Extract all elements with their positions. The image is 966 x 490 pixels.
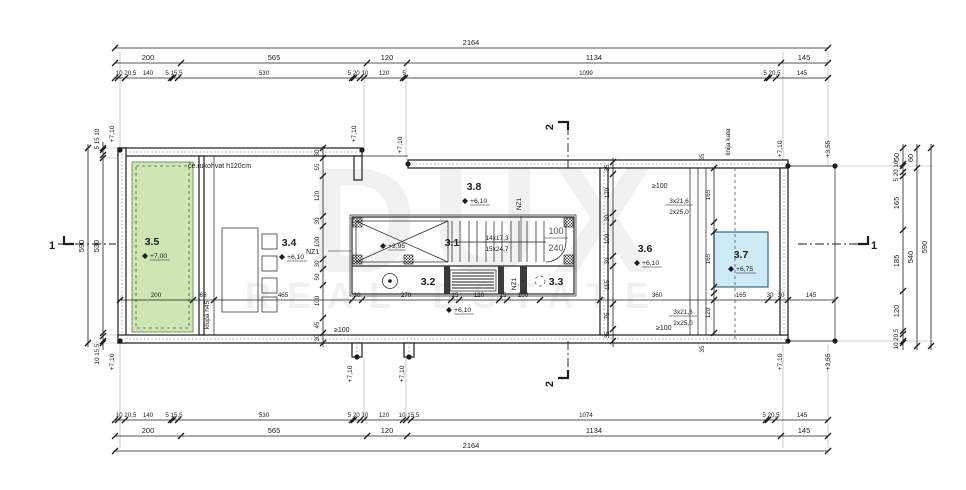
dim-right-c1-5: 10 20,5 <box>893 328 900 349</box>
dim-right-c1-0: 50 <box>892 153 901 161</box>
dimensions-top: 2164 200 565 120 1134 145 10 20,5 140 5 … <box>112 38 831 81</box>
dim-right-c1-3: 185 <box>892 255 901 268</box>
handrail-note: če.rukohvat h120cm <box>188 163 251 170</box>
room-3-5-number: 3.5 <box>145 236 160 248</box>
dim-right-c2-0: 60 <box>906 154 915 162</box>
dim-cc-2: 120 <box>705 307 712 318</box>
dim-left-outer: 590 <box>77 240 86 253</box>
dim-offset-bottom: 35 <box>699 345 706 352</box>
dim-top-r2-2: 120 <box>381 53 394 62</box>
room-3-7-elev: +6,75 <box>736 266 753 273</box>
dim-int-12: 30 <box>778 292 785 299</box>
plan-svg: 2164 200 565 120 1134 145 10 20,5 140 5 … <box>0 0 966 490</box>
dim-bot-r1-0: 10 20,5 <box>116 412 137 419</box>
dim-bot-r1-3: 530 <box>259 412 270 419</box>
dim-bot-r1-1: 140 <box>143 412 154 419</box>
dim-cc-0: 165 <box>705 189 712 200</box>
steps-note-top-1: 3x21,6 <box>669 198 689 205</box>
dim-bot-r1-9: 145 <box>797 412 808 419</box>
bench-note: klupa h45 <box>204 301 211 330</box>
dim-top-r3-4: 5 20 10 <box>348 70 369 77</box>
dim-top-r2-4: 145 <box>798 53 811 62</box>
dim-top-r3-7: 1099 <box>579 70 593 77</box>
section-1-right-label: 1 <box>871 240 877 252</box>
dim-bot-r1-5: 120 <box>379 412 390 419</box>
dim-int-13: 145 <box>806 292 817 299</box>
dim-top-r3-2: 5 15,5 <box>165 70 183 77</box>
room-3-7-number: 3.7 <box>734 249 749 261</box>
floor-plan-drawing: 2164 200 565 120 1134 145 10 20,5 140 5 … <box>0 0 966 490</box>
steps-note-top-2: 2x25,0 <box>669 209 689 216</box>
dim-bot-r2-0: 200 <box>142 426 155 435</box>
floor-line-label: linija kata <box>725 128 732 155</box>
elev-corner: +7,10 <box>399 365 406 382</box>
elev-corner: +3,55 <box>825 353 832 370</box>
dim-int-11: 30 <box>767 292 774 299</box>
dim-top-r3-6: 5 <box>402 70 406 77</box>
dim-top-total: 2164 <box>463 38 480 47</box>
dim-int-1: 65 <box>200 292 207 299</box>
dim-top-r2-1: 565 <box>268 53 281 62</box>
dim-offset-top: 35 <box>699 153 706 160</box>
dim-right-c1-2: 165 <box>892 197 901 210</box>
dim-bot-r1-8: 5 20,5 <box>762 412 780 419</box>
terrace-3-5: 3.5 +7,00 <box>132 162 193 332</box>
dim-cb-7: 35 <box>604 331 611 338</box>
room-3-4-number: 3.4 <box>282 237 297 249</box>
dim-top-r3-3: 530 <box>259 70 270 77</box>
dim-left-inner: 530 <box>92 240 101 253</box>
dim-bot-total: 2164 <box>463 441 480 450</box>
dim-bot-r1-4: 5 20 10 <box>348 412 369 419</box>
section-1-left-label: 1 <box>49 240 55 252</box>
section-2-bottom-label: 2 <box>544 381 556 387</box>
lower-storey-outline <box>788 166 835 341</box>
elev-corner: +3,55 <box>825 140 832 157</box>
dim-ca-9: 30 <box>314 334 321 341</box>
dim-top-r2-0: 200 <box>142 53 155 62</box>
dim-top-r2-3: 1134 <box>586 53 602 62</box>
elev-corner: +7,10 <box>109 353 116 370</box>
dim-right-c1-4: 120 <box>892 305 901 318</box>
dim-bot-r2-3: 1134 <box>586 426 602 435</box>
dimensions-left: 590 530 5 15 10 10 15,5 <box>77 128 106 364</box>
steps-note-bot-1: 3x21,6 <box>673 309 693 316</box>
dim-cc-1: 165 <box>705 253 712 264</box>
dim-top-r3-5: 120 <box>379 70 390 77</box>
dim-right-c2-1: 540 <box>906 251 915 264</box>
dim-bot-r2-4: 145 <box>798 426 811 435</box>
dimensions-right: 50 5 20 10 165 185 120 10 20,5 60 540 59… <box>892 144 934 350</box>
watermark-line2: REAL ESTATE <box>245 275 665 316</box>
dim-left-bottom-cluster: 10 15,5 <box>94 343 101 364</box>
dim-bot-r2-1: 565 <box>268 426 281 435</box>
dim-top-r3-8: 5 20,5 <box>763 70 781 77</box>
elev-corner: +7,10 <box>347 365 354 382</box>
watermark: DUX REAL ESTATE <box>245 136 667 316</box>
dim-left-top-cluster: 5 15 10 <box>94 128 101 149</box>
steps-note-bot-2: 2x25,0 <box>673 320 693 327</box>
dimensions-bottom: 10 20,5 140 5 15,5 530 5 20 10 120 10 15… <box>112 412 831 454</box>
room-3-5-elev: +7,00 <box>150 253 167 260</box>
dim-int-10: 165 <box>736 292 747 299</box>
dim-bot-r1-7: 1074 <box>579 412 593 419</box>
dim-bot-r2-2: 120 <box>381 426 394 435</box>
dim-ca-8: 45 <box>314 321 321 328</box>
elev-corner: +7,10 <box>109 125 116 142</box>
dim-top-r3-0: 10 20,5 <box>116 70 137 77</box>
dim-int-0: 200 <box>151 292 162 299</box>
dim-right-c1-1: 5 20 10 <box>893 160 900 181</box>
elev-corner: +7,10 <box>777 140 784 157</box>
room-3-4-elev: +6,10 <box>287 254 304 261</box>
min-width-note: ≥100 <box>656 325 672 332</box>
min-width-note: ≥100 <box>334 327 350 334</box>
dim-right-outer: 590 <box>920 241 929 254</box>
dimension-chain-c: 165 165 120 35 35 <box>699 153 717 352</box>
dim-bot-r1-6: 10 15,5 <box>399 412 420 419</box>
elev-corner: +7,10 <box>777 353 784 370</box>
dim-top-r3-9: 145 <box>797 70 808 77</box>
section-2-top-label: 2 <box>544 124 556 130</box>
dim-top-r3-1: 140 <box>143 70 154 77</box>
chair <box>262 234 277 249</box>
chair <box>262 256 277 271</box>
dim-bot-r1-2: 5 15,5 <box>165 412 183 419</box>
